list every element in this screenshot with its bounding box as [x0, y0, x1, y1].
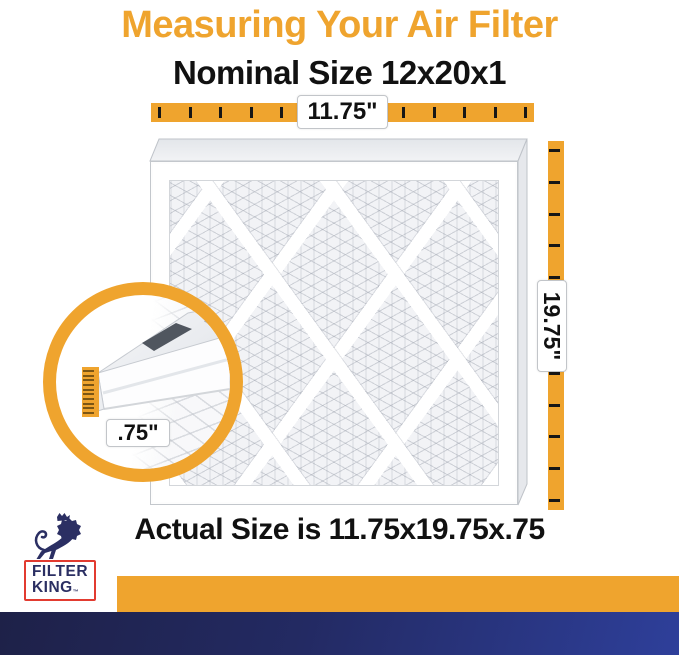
tick-mark	[549, 276, 560, 279]
filter-top-face	[150, 139, 527, 161]
top-width-value-label: 11.75"	[297, 95, 388, 129]
thickness-zoom-circle: .75"	[43, 282, 243, 482]
tick-mark	[549, 404, 560, 407]
tick-mark	[524, 107, 527, 118]
thickness-value-label: .75"	[106, 419, 170, 447]
tick-mark	[402, 107, 405, 118]
tick-mark	[189, 107, 192, 118]
tick-mark	[494, 107, 497, 118]
tick-mark	[549, 435, 560, 438]
tick-mark	[549, 499, 560, 502]
lion-tail	[36, 531, 46, 550]
tick-mark	[83, 384, 94, 386]
page-title: Measuring Your Air Filter	[0, 0, 679, 50]
tick-mark	[549, 372, 560, 375]
tick-mark	[83, 379, 94, 381]
tick-mark	[463, 107, 466, 118]
tick-mark	[83, 407, 94, 409]
tick-mark	[280, 107, 283, 118]
tick-mark	[83, 389, 94, 391]
filter-king-logo: FILTER KING™	[18, 510, 102, 601]
logo-word-king-text: KING	[32, 579, 73, 596]
logo-wordmark-box: FILTER KING™	[24, 560, 96, 601]
tick-mark	[83, 412, 94, 414]
tick-mark	[83, 393, 94, 395]
lion-crown-icon	[28, 510, 92, 562]
right-height-value-label: 19.75"	[537, 280, 567, 372]
footer-navy-bar	[0, 612, 679, 655]
filter-side-face	[518, 139, 527, 505]
tick-mark	[83, 375, 94, 377]
tick-mark	[219, 107, 222, 118]
tick-mark	[433, 107, 436, 118]
tick-mark	[549, 467, 560, 470]
tick-mark	[549, 181, 560, 184]
filter-corner-wedge	[93, 305, 230, 411]
tick-mark	[83, 403, 94, 405]
tick-mark	[549, 213, 560, 216]
tick-mark	[549, 149, 560, 152]
footer-orange-bar	[117, 576, 679, 612]
tick-mark	[250, 107, 253, 118]
tick-mark	[83, 398, 94, 400]
nominal-size-label: Nominal Size 12x20x1	[0, 52, 679, 94]
logo-word-filter: FILTER	[32, 564, 88, 580]
trademark-symbol: ™	[73, 589, 80, 595]
air-filter-measuring-infographic: Measuring Your Air Filter Nominal Size 1…	[0, 0, 679, 655]
tick-mark	[158, 107, 161, 118]
tick-mark	[83, 370, 94, 372]
logo-word-king: KING™	[32, 580, 88, 596]
thickness-mini-ruler	[82, 367, 99, 417]
tick-mark	[549, 244, 560, 247]
